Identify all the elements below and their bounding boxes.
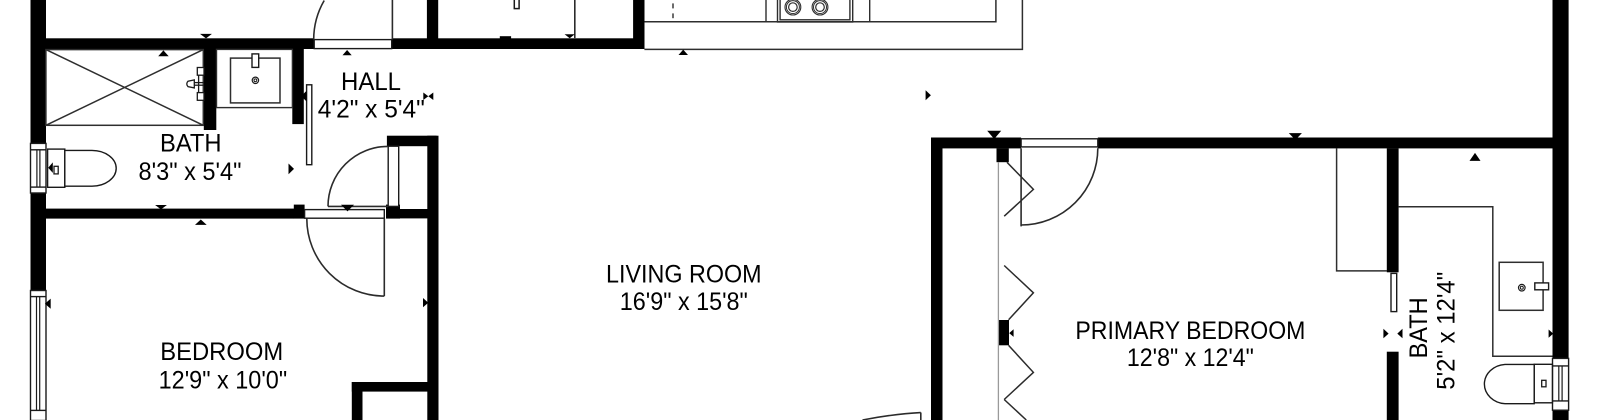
svg-text:12'8" x 12'4": 12'8" x 12'4" (1127, 344, 1254, 372)
svg-text:PRIMARY BEDROOM: PRIMARY BEDROOM (1075, 317, 1305, 345)
svg-text:12'9" x 10'0": 12'9" x 10'0" (159, 366, 288, 394)
svg-text:BATH: BATH (160, 130, 222, 158)
svg-text:BEDROOM: BEDROOM (160, 338, 283, 366)
svg-text:16'9" x 15'8": 16'9" x 15'8" (620, 288, 748, 316)
svg-text:BATH: BATH (1405, 297, 1433, 358)
svg-text:5'2" x 12'4": 5'2" x 12'4" (1433, 272, 1461, 390)
svg-text:8'3" x 5'4": 8'3" x 5'4" (139, 158, 242, 186)
svg-text:LIVING ROOM: LIVING ROOM (606, 260, 762, 288)
svg-text:HALL: HALL (341, 68, 401, 96)
svg-text:4'2" x 5'4": 4'2" x 5'4" (318, 96, 425, 124)
